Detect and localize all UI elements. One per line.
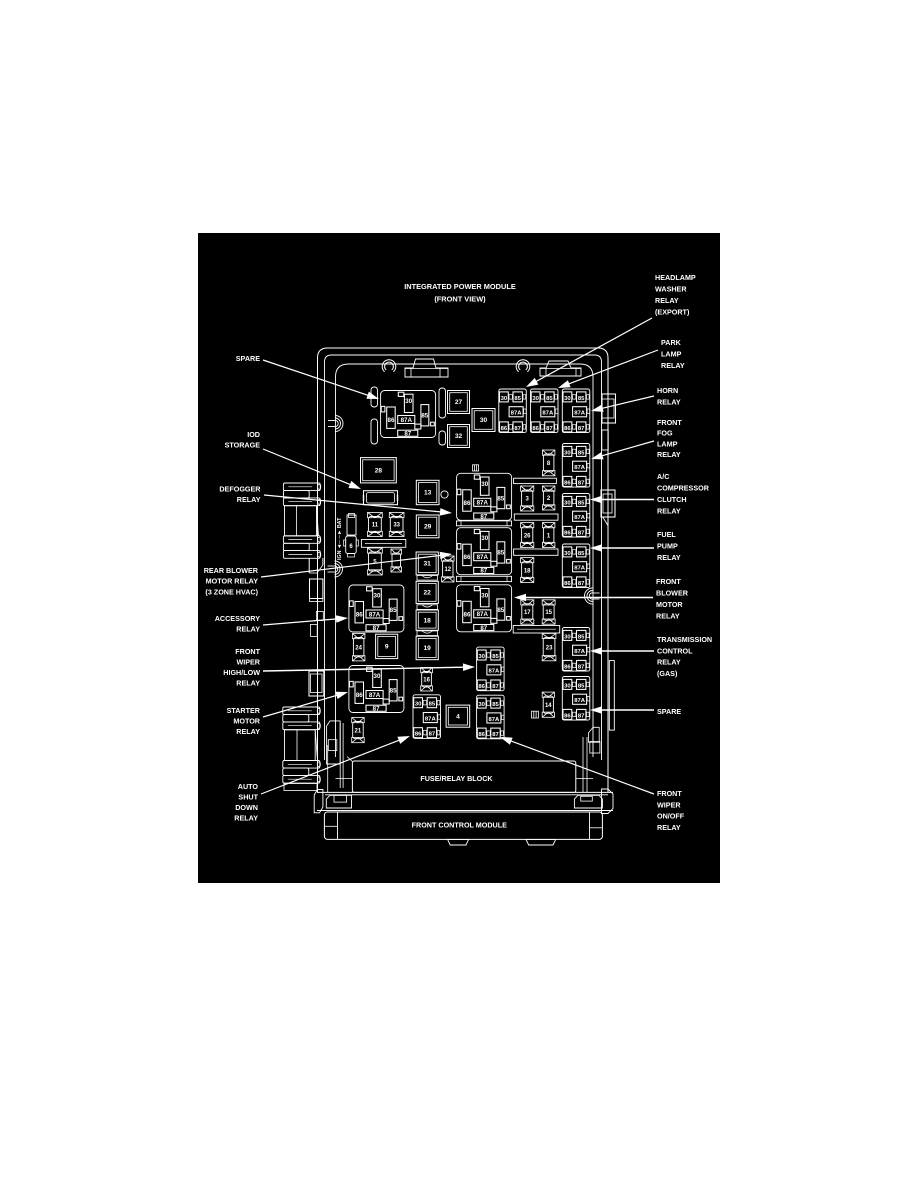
svg-text:30: 30 — [564, 450, 571, 456]
svg-text:30: 30 — [564, 634, 571, 640]
svg-text:SPARE: SPARE — [657, 707, 681, 716]
svg-text:87: 87 — [404, 431, 411, 438]
svg-text:86: 86 — [478, 732, 485, 738]
svg-text:26: 26 — [524, 533, 531, 539]
svg-text:18: 18 — [424, 617, 432, 624]
svg-text:86: 86 — [564, 581, 571, 587]
svg-text:WIPER: WIPER — [657, 800, 681, 809]
svg-text:86: 86 — [356, 692, 363, 699]
svg-text:18: 18 — [524, 568, 531, 574]
svg-text:85: 85 — [578, 450, 585, 456]
svg-text:22: 22 — [424, 590, 432, 597]
svg-text:87A: 87A — [511, 411, 523, 417]
svg-text:86: 86 — [532, 426, 539, 432]
svg-text:23: 23 — [546, 645, 553, 651]
svg-text:FRONT: FRONT — [235, 647, 260, 656]
svg-text:FUSE/RELAY BLOCK: FUSE/RELAY BLOCK — [420, 774, 493, 783]
svg-text:RELAY: RELAY — [657, 658, 681, 667]
svg-text:87A: 87A — [574, 465, 586, 471]
svg-text:RELAY: RELAY — [236, 679, 260, 688]
svg-text:30: 30 — [481, 535, 488, 542]
svg-text:MOTOR RELAY: MOTOR RELAY — [206, 577, 259, 586]
svg-text:85: 85 — [578, 551, 585, 557]
svg-text:17: 17 — [524, 610, 531, 616]
svg-text:FOG: FOG — [657, 429, 673, 438]
svg-text:16: 16 — [423, 678, 430, 684]
svg-text:30: 30 — [415, 702, 422, 708]
svg-text:86: 86 — [464, 554, 471, 561]
svg-text:87A: 87A — [425, 716, 437, 722]
svg-text:DOWN: DOWN — [235, 803, 258, 812]
svg-text:87: 87 — [492, 684, 499, 690]
svg-text:IGN ◄─ ─► BAT: IGN ◄─ ─► BAT — [337, 517, 343, 560]
svg-text:11: 11 — [372, 523, 379, 529]
svg-text:PUMP: PUMP — [657, 542, 678, 551]
svg-text:30: 30 — [478, 702, 485, 708]
svg-text:COMPRESSOR: COMPRESSOR — [657, 484, 710, 493]
svg-text:LAMP: LAMP — [657, 439, 678, 448]
svg-text:87: 87 — [373, 706, 380, 713]
svg-text:13: 13 — [424, 490, 432, 497]
svg-text:87A: 87A — [477, 611, 489, 618]
svg-text:87A: 87A — [574, 515, 586, 521]
svg-text:SPARE: SPARE — [236, 354, 260, 363]
svg-text:33: 33 — [393, 523, 400, 529]
svg-text:REAR BLOWER: REAR BLOWER — [204, 566, 259, 575]
svg-text:CLUTCH: CLUTCH — [657, 495, 687, 504]
svg-text:RELAY: RELAY — [236, 625, 260, 634]
svg-text:RELAY: RELAY — [237, 495, 261, 504]
svg-text:AUTO: AUTO — [238, 782, 259, 791]
svg-text:19: 19 — [424, 645, 432, 652]
svg-text:87A: 87A — [574, 698, 586, 704]
svg-text:A/C: A/C — [657, 472, 669, 481]
svg-text:21: 21 — [355, 728, 362, 734]
svg-text:30: 30 — [564, 551, 571, 557]
svg-text:WIPER: WIPER — [236, 658, 260, 667]
svg-text:RELAY: RELAY — [657, 553, 681, 562]
svg-text:30: 30 — [374, 673, 381, 680]
svg-text:87: 87 — [578, 581, 585, 587]
svg-text:85: 85 — [578, 634, 585, 640]
svg-text:30: 30 — [501, 396, 508, 402]
svg-text:24: 24 — [355, 645, 362, 651]
svg-text:FRONT: FRONT — [656, 577, 681, 586]
svg-text:BLOWER: BLOWER — [656, 589, 689, 598]
svg-text:87: 87 — [578, 713, 585, 719]
svg-text:87: 87 — [480, 513, 487, 520]
svg-text:86: 86 — [478, 684, 485, 690]
svg-text:85: 85 — [492, 654, 499, 660]
svg-text:(EXPORT): (EXPORT) — [655, 308, 690, 317]
svg-text:HEADLAMP: HEADLAMP — [655, 273, 696, 282]
svg-text:RELAY: RELAY — [657, 450, 681, 459]
svg-text:85: 85 — [546, 396, 553, 402]
svg-text:STARTER: STARTER — [227, 706, 261, 715]
svg-text:85: 85 — [429, 702, 436, 708]
svg-text:30: 30 — [481, 592, 488, 599]
svg-text:87A: 87A — [401, 417, 413, 424]
svg-text:ACCESSORY: ACCESSORY — [215, 614, 260, 623]
svg-text:DEFOGGER: DEFOGGER — [219, 485, 261, 494]
svg-text:32: 32 — [455, 433, 463, 440]
svg-text:30: 30 — [481, 481, 488, 488]
svg-text:CONTROL: CONTROL — [657, 646, 693, 655]
svg-text:(GAS): (GAS) — [657, 669, 678, 678]
svg-text:RELAY: RELAY — [236, 727, 260, 736]
svg-text:86: 86 — [501, 426, 508, 432]
svg-text:85: 85 — [578, 500, 585, 506]
svg-text:FUEL: FUEL — [657, 530, 676, 539]
svg-text:RELAY: RELAY — [234, 814, 258, 823]
svg-text:31: 31 — [424, 561, 432, 568]
svg-text:87: 87 — [546, 426, 553, 432]
svg-text:29: 29 — [424, 524, 432, 531]
svg-text:14: 14 — [545, 703, 552, 709]
svg-text:86: 86 — [464, 611, 471, 618]
svg-text:27: 27 — [455, 399, 463, 406]
svg-text:LAMP: LAMP — [661, 350, 682, 359]
svg-text:SHUT: SHUT — [238, 793, 258, 802]
svg-text:87A: 87A — [488, 669, 500, 675]
svg-text:RELAY: RELAY — [657, 823, 681, 832]
svg-text:86: 86 — [464, 500, 471, 507]
svg-text:86: 86 — [564, 480, 571, 486]
svg-text:INTEGRATED POWER MODULE: INTEGRATED POWER MODULE — [404, 282, 516, 291]
svg-text:85: 85 — [497, 607, 504, 614]
svg-text:30: 30 — [478, 654, 485, 660]
svg-text:ON/OFF: ON/OFF — [657, 812, 685, 821]
svg-text:TRANSMISSION: TRANSMISSION — [657, 635, 712, 644]
svg-text:30: 30 — [480, 417, 488, 424]
svg-text:87: 87 — [480, 625, 487, 632]
svg-text:86: 86 — [564, 530, 571, 536]
svg-text:RELAY: RELAY — [655, 296, 679, 305]
svg-text:12: 12 — [444, 567, 451, 573]
svg-text:MOTOR: MOTOR — [233, 717, 260, 726]
svg-text:87: 87 — [480, 568, 487, 575]
svg-text:86: 86 — [564, 713, 571, 719]
svg-text:87A: 87A — [477, 500, 489, 507]
svg-text:85: 85 — [497, 550, 504, 557]
svg-text:87A: 87A — [542, 411, 554, 417]
svg-text:WASHER: WASHER — [655, 285, 687, 294]
svg-text:85: 85 — [492, 702, 499, 708]
svg-text:87A: 87A — [369, 692, 381, 699]
svg-text:(3 ZONE HVAC): (3 ZONE HVAC) — [205, 587, 258, 596]
svg-text:87: 87 — [578, 480, 585, 486]
svg-text:FRONT CONTROL MODULE: FRONT CONTROL MODULE — [412, 821, 507, 830]
svg-text:28: 28 — [375, 467, 383, 474]
svg-text:85: 85 — [421, 413, 428, 420]
svg-text:85: 85 — [390, 607, 397, 614]
svg-text:87A: 87A — [477, 554, 489, 561]
svg-text:RELAY: RELAY — [661, 361, 685, 370]
svg-text:85: 85 — [578, 396, 585, 402]
svg-text:87: 87 — [373, 625, 380, 632]
svg-text:87A: 87A — [574, 411, 586, 417]
svg-text:MOTOR: MOTOR — [656, 600, 683, 609]
svg-text:87A: 87A — [488, 717, 500, 723]
svg-text:30: 30 — [405, 398, 412, 405]
svg-text:IOD: IOD — [247, 430, 260, 439]
svg-text:30: 30 — [564, 683, 571, 689]
svg-text:15: 15 — [545, 610, 552, 616]
svg-text:87A: 87A — [369, 611, 381, 618]
svg-text:87A: 87A — [574, 566, 586, 572]
svg-text:HORN: HORN — [657, 386, 678, 395]
svg-text:87: 87 — [514, 426, 521, 432]
svg-text:87: 87 — [578, 426, 585, 432]
svg-text:30: 30 — [564, 396, 571, 402]
svg-text:30: 30 — [564, 500, 571, 506]
svg-text:RELAY: RELAY — [656, 612, 680, 621]
svg-text:87: 87 — [492, 732, 499, 738]
svg-text:FRONT: FRONT — [657, 418, 682, 427]
svg-text:87: 87 — [578, 664, 585, 670]
svg-text:STORAGE: STORAGE — [225, 441, 261, 450]
svg-text:86: 86 — [415, 732, 422, 738]
svg-text:85: 85 — [514, 396, 521, 402]
svg-text:RELAY: RELAY — [657, 398, 681, 407]
svg-text:RELAY: RELAY — [657, 507, 681, 516]
svg-text:87A: 87A — [574, 649, 586, 655]
svg-text:85: 85 — [497, 495, 504, 502]
svg-text:87: 87 — [429, 732, 436, 738]
svg-text:87: 87 — [578, 530, 585, 536]
svg-text:85: 85 — [390, 688, 397, 695]
svg-text:PARK: PARK — [661, 338, 682, 347]
svg-text:86: 86 — [388, 417, 395, 424]
svg-text:86: 86 — [564, 664, 571, 670]
svg-text:30: 30 — [532, 396, 539, 402]
svg-text:86: 86 — [356, 612, 363, 619]
svg-text:30: 30 — [374, 593, 381, 600]
svg-text:(FRONT VIEW): (FRONT VIEW) — [434, 295, 486, 304]
svg-text:4: 4 — [456, 713, 460, 720]
svg-text:FRONT: FRONT — [657, 789, 682, 798]
svg-text:HIGH/LOW: HIGH/LOW — [223, 668, 260, 677]
svg-text:86: 86 — [564, 426, 571, 432]
svg-text:85: 85 — [578, 683, 585, 689]
svg-text:9: 9 — [385, 644, 389, 651]
